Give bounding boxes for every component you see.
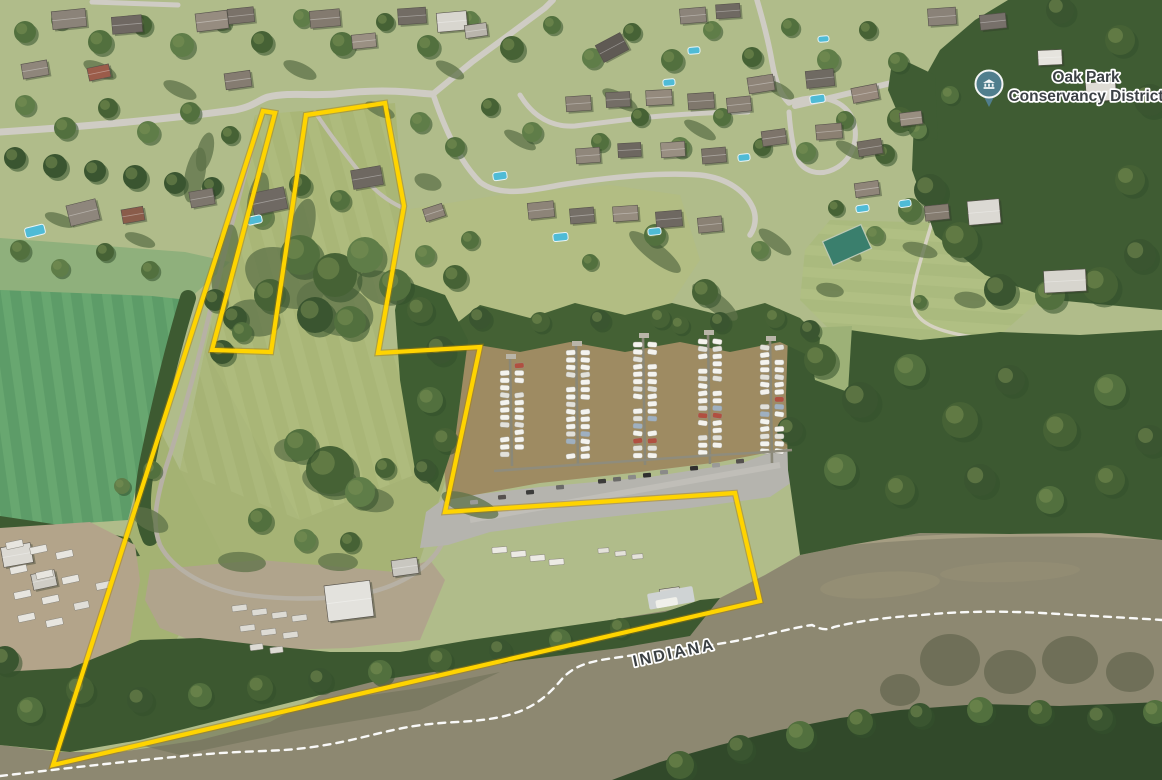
boat	[774, 344, 784, 350]
poi-label-line2[interactable]: Conservancy District	[1008, 88, 1162, 105]
car	[613, 477, 621, 482]
trailer	[250, 643, 264, 651]
boat	[698, 369, 708, 374]
boat	[633, 445, 643, 451]
boat	[580, 364, 590, 370]
boat	[633, 453, 643, 458]
boat	[566, 409, 576, 415]
building	[927, 7, 958, 28]
boat	[712, 338, 722, 344]
building	[527, 200, 557, 221]
trailer	[549, 558, 564, 565]
boat	[633, 356, 643, 362]
building	[1038, 49, 1065, 67]
boat	[774, 411, 784, 417]
car	[598, 479, 606, 484]
boat	[514, 377, 524, 383]
boat	[698, 353, 708, 359]
building	[655, 210, 684, 230]
boat	[580, 409, 590, 415]
car	[736, 459, 744, 464]
boat	[581, 387, 591, 392]
boat	[647, 401, 657, 407]
swimming-pool	[899, 199, 912, 208]
boat	[580, 446, 590, 452]
boat	[698, 346, 708, 352]
boat	[774, 389, 784, 395]
boat	[712, 368, 722, 374]
boat	[580, 379, 590, 385]
building	[195, 10, 231, 34]
boat	[566, 431, 576, 436]
boat	[647, 364, 657, 370]
building	[924, 204, 952, 224]
boat	[566, 357, 576, 362]
boat	[698, 420, 708, 426]
boat	[774, 441, 784, 447]
swimming-pool	[493, 171, 508, 181]
boat	[698, 339, 708, 345]
boat	[633, 364, 643, 370]
boat	[712, 427, 722, 433]
boat	[647, 438, 657, 444]
boat	[514, 429, 524, 435]
boat	[500, 392, 510, 398]
boat	[500, 370, 510, 376]
boat	[647, 349, 657, 355]
boat	[712, 390, 722, 396]
boat	[760, 404, 770, 409]
boat	[633, 349, 643, 355]
building	[716, 3, 743, 21]
boat	[712, 420, 722, 426]
boat	[712, 442, 722, 448]
boat	[648, 446, 658, 451]
boat	[515, 407, 525, 412]
building	[51, 8, 89, 32]
boat	[500, 436, 510, 442]
boat	[647, 386, 657, 392]
boat	[698, 383, 708, 389]
boat	[514, 400, 524, 406]
building	[111, 15, 145, 37]
swimming-pool	[818, 36, 829, 43]
boat	[580, 394, 590, 400]
boat	[500, 444, 510, 450]
boat	[633, 438, 643, 444]
swimming-pool	[648, 227, 662, 235]
car	[556, 485, 564, 490]
trailer	[632, 554, 643, 560]
building	[1043, 269, 1088, 295]
building	[351, 33, 379, 52]
building	[618, 142, 644, 159]
boat	[514, 363, 524, 369]
boat	[633, 393, 643, 399]
boat	[713, 398, 723, 403]
boat	[581, 424, 591, 429]
trailer	[615, 551, 626, 557]
building	[613, 205, 641, 224]
map-viewport[interactable]: INDIANA Oak Park Conservancy District	[0, 0, 1162, 780]
building	[309, 9, 343, 31]
boat	[514, 392, 524, 398]
boat	[698, 376, 708, 382]
boat	[580, 431, 590, 437]
building	[397, 7, 428, 27]
boat	[774, 374, 784, 380]
building	[687, 92, 716, 112]
building	[576, 147, 603, 166]
building	[227, 6, 257, 26]
building	[566, 95, 594, 114]
trailer	[270, 646, 284, 654]
map-canvas[interactable]: INDIANA Oak Park Conservancy District	[0, 0, 1162, 780]
boat	[500, 415, 510, 420]
boat	[633, 430, 643, 436]
boat	[515, 370, 525, 375]
boat	[698, 406, 708, 411]
trailer	[511, 550, 526, 557]
boat	[580, 453, 590, 459]
building	[815, 123, 844, 142]
boat	[580, 416, 590, 422]
boat	[633, 416, 643, 421]
boat	[760, 381, 770, 387]
building	[761, 128, 789, 148]
boat	[760, 352, 770, 358]
boat	[514, 437, 524, 443]
swimming-pool	[738, 153, 751, 161]
trailer	[598, 548, 609, 554]
boat	[647, 416, 657, 422]
boat	[774, 381, 784, 387]
car	[498, 495, 506, 500]
boat	[760, 433, 770, 439]
boat	[515, 444, 525, 449]
boat	[774, 426, 784, 432]
building	[701, 147, 728, 166]
boat	[566, 401, 576, 407]
boat	[633, 423, 643, 429]
boat	[581, 350, 591, 355]
building	[646, 89, 675, 107]
trailer	[530, 554, 545, 561]
boat	[580, 372, 590, 378]
boat	[566, 424, 576, 430]
boat	[760, 411, 770, 417]
building	[805, 68, 837, 90]
boat	[500, 378, 510, 383]
boat	[760, 441, 770, 446]
swimming-pool	[688, 46, 701, 54]
boat	[633, 408, 643, 414]
boat	[760, 374, 770, 380]
boat	[698, 390, 708, 396]
boat	[500, 399, 510, 405]
boat	[712, 375, 722, 381]
boat	[514, 422, 524, 428]
boat	[633, 342, 643, 347]
boat	[774, 404, 784, 410]
boat	[566, 453, 576, 459]
swimming-pool	[810, 94, 826, 104]
boat	[698, 398, 708, 404]
boat	[698, 443, 708, 448]
boat	[774, 367, 784, 373]
trailer	[492, 546, 507, 553]
boat	[566, 416, 576, 422]
swimming-pool	[663, 78, 676, 86]
boat	[712, 353, 722, 359]
boat	[566, 364, 576, 370]
car	[470, 500, 478, 505]
boat	[775, 434, 785, 439]
car	[690, 466, 698, 471]
boat	[633, 371, 643, 377]
boat	[566, 387, 576, 393]
building	[569, 207, 596, 226]
building	[661, 141, 688, 160]
boat	[760, 426, 770, 432]
boat	[566, 438, 576, 444]
building	[979, 12, 1009, 32]
boat	[500, 452, 510, 457]
boat	[760, 359, 770, 365]
boat	[500, 407, 510, 413]
boat	[648, 372, 658, 377]
boat	[760, 418, 770, 424]
boat	[712, 405, 722, 411]
boat	[698, 435, 708, 441]
boat	[712, 412, 722, 418]
boat	[713, 435, 723, 440]
boat	[647, 393, 657, 399]
boat	[647, 342, 657, 348]
boat	[698, 413, 708, 419]
poi-label-line1[interactable]: Oak Park	[1052, 69, 1120, 86]
building	[726, 96, 754, 116]
building	[697, 216, 725, 236]
building	[324, 580, 376, 624]
boat	[500, 385, 510, 391]
boat	[647, 430, 657, 436]
boat	[760, 367, 770, 372]
boat	[580, 438, 590, 444]
boat	[713, 361, 723, 366]
car	[628, 475, 636, 480]
car	[643, 473, 651, 478]
building	[967, 198, 1003, 227]
swimming-pool	[553, 232, 569, 242]
building	[899, 110, 925, 128]
boat	[580, 357, 590, 363]
boat	[566, 394, 576, 399]
car	[660, 470, 668, 475]
boat	[514, 414, 524, 420]
boat	[500, 422, 510, 428]
swimming-pool	[856, 204, 870, 213]
boat	[760, 344, 770, 350]
boat	[566, 372, 576, 378]
boat	[712, 346, 722, 352]
car	[712, 463, 720, 468]
boat	[566, 350, 576, 356]
boat	[633, 386, 643, 392]
boat	[775, 360, 785, 365]
building	[606, 91, 633, 109]
boat	[775, 397, 785, 402]
boat	[648, 409, 658, 414]
building	[679, 7, 708, 26]
boat	[633, 379, 643, 384]
car	[526, 490, 534, 495]
boat	[647, 379, 657, 385]
boat	[647, 453, 657, 459]
boat	[760, 389, 770, 395]
